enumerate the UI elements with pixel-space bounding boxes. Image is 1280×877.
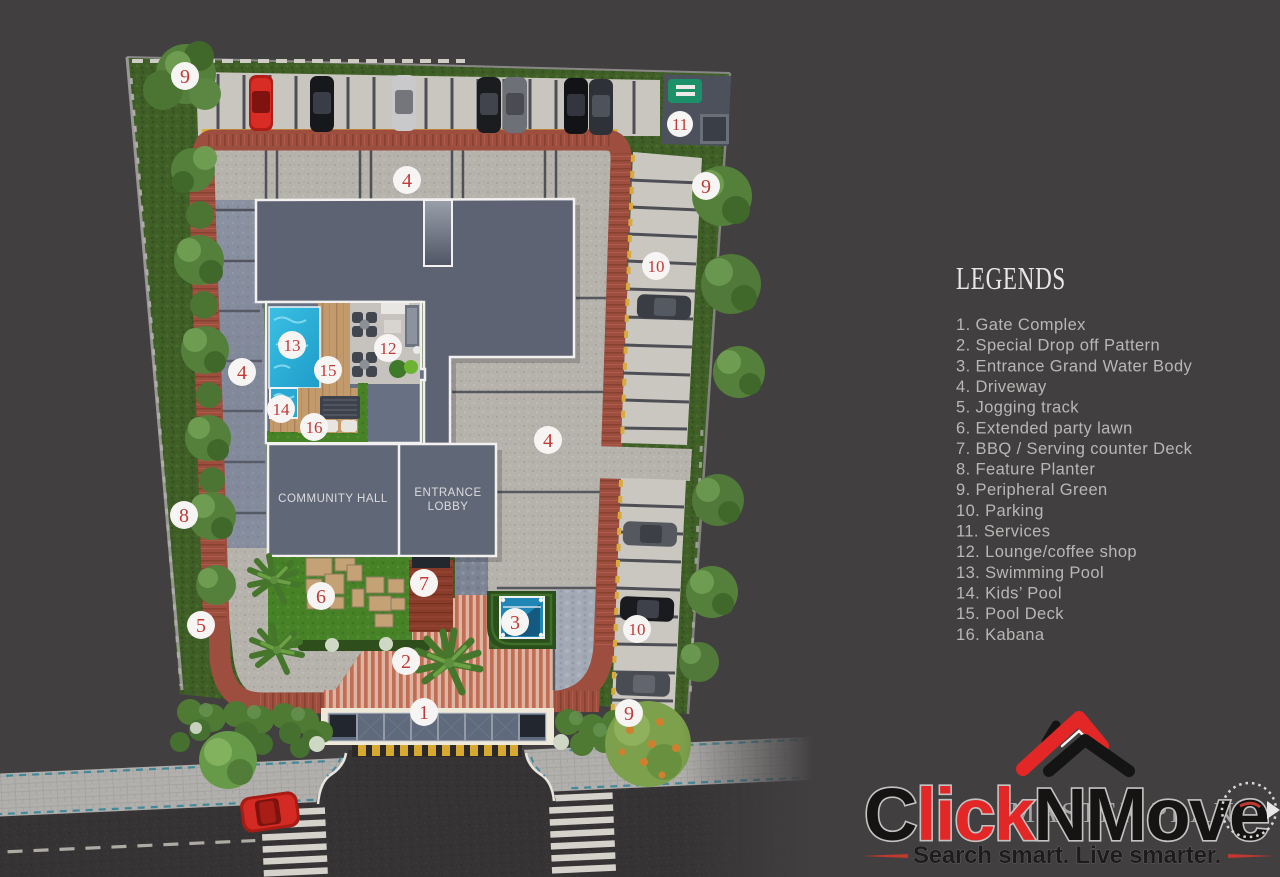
svg-text:7: 7 [419, 573, 429, 595]
svg-text:14. Kids’ Pool: 14. Kids’ Pool [956, 585, 1062, 603]
svg-text:9: 9 [624, 703, 634, 725]
svg-text:15: 15 [320, 361, 337, 380]
svg-text:4: 4 [237, 362, 247, 384]
svg-text:12: 12 [380, 339, 397, 358]
svg-text:1: 1 [419, 702, 429, 724]
svg-text:6: 6 [316, 586, 326, 608]
svg-text:4: 4 [543, 430, 553, 452]
svg-text:9: 9 [701, 176, 711, 198]
svg-text:Search smart. Live smarter.: Search smart. Live smarter. [913, 842, 1221, 869]
svg-text:8. Feature Planter: 8. Feature Planter [956, 461, 1095, 479]
svg-text:3. Entrance Grand Water Body: 3. Entrance Grand Water Body [956, 357, 1193, 375]
svg-text:16. Kabana: 16. Kabana [956, 626, 1045, 644]
svg-text:4. Driveway: 4. Driveway [956, 378, 1047, 396]
svg-text:13. Swimming Pool: 13. Swimming Pool [956, 564, 1104, 582]
svg-text:2: 2 [401, 651, 411, 673]
svg-text:8: 8 [179, 505, 189, 527]
svg-text:4: 4 [402, 170, 412, 192]
svg-text:6. Extended party lawn: 6. Extended party lawn [956, 419, 1133, 437]
svg-text:2. Special Drop off Pattern: 2. Special Drop off Pattern [956, 337, 1160, 355]
svg-text:15. Pool Deck: 15. Pool Deck [956, 605, 1064, 623]
svg-text:11: 11 [672, 115, 688, 134]
svg-text:7. BBQ / Serving counter Deck: 7. BBQ / Serving counter Deck [956, 440, 1193, 458]
svg-text:14: 14 [273, 400, 291, 419]
svg-text:16: 16 [306, 418, 323, 437]
svg-text:10: 10 [648, 257, 665, 276]
svg-text:5. Jogging track: 5. Jogging track [956, 399, 1079, 417]
svg-text:11. Services: 11. Services [956, 523, 1050, 541]
svg-text:5: 5 [196, 615, 206, 637]
svg-text:1. Gate Complex: 1. Gate Complex [956, 316, 1086, 334]
svg-text:12. Lounge/coffee shop: 12. Lounge/coffee shop [956, 543, 1137, 561]
svg-text:3: 3 [510, 612, 520, 634]
svg-text:9: 9 [180, 66, 190, 88]
svg-text:10: 10 [629, 620, 646, 639]
svg-text:10. Parking: 10. Parking [956, 502, 1044, 520]
svg-text:13: 13 [284, 336, 301, 355]
svg-text:LOBBY: LOBBY [428, 501, 469, 513]
svg-text:COMMUNITY HALL: COMMUNITY HALL [278, 493, 388, 505]
svg-text:LEGENDS: LEGENDS [956, 261, 1066, 297]
svg-text:ENTRANCE: ENTRANCE [414, 487, 481, 499]
svg-text:9. Peripheral Green: 9. Peripheral Green [956, 481, 1108, 499]
